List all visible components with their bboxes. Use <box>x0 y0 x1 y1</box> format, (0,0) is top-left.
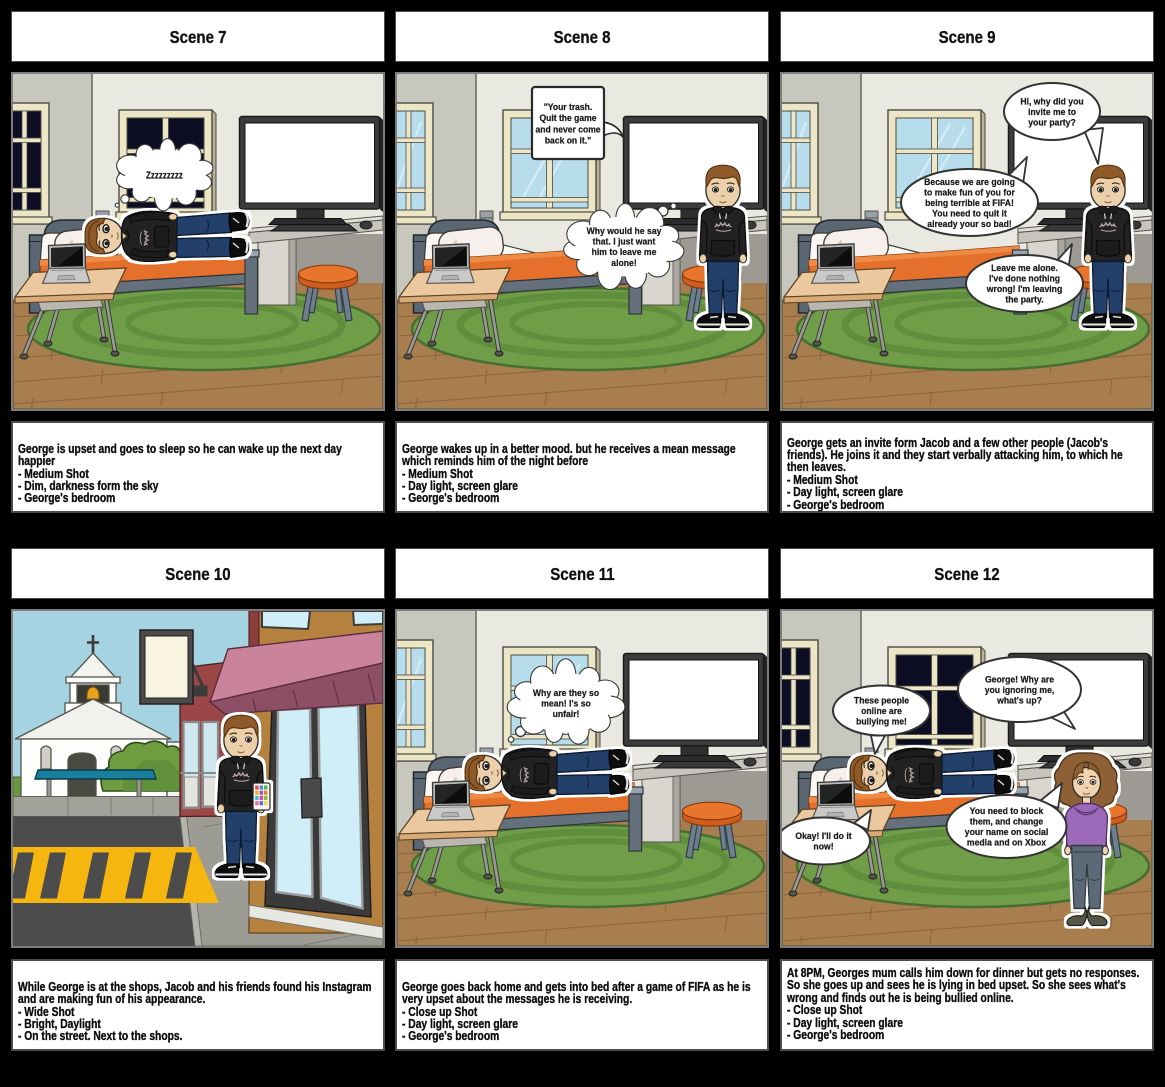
svg-text:alone!: alone! <box>612 257 637 268</box>
svg-text:Hi, why did you: Hi, why did you <box>1020 95 1083 106</box>
svg-text:online are: online are <box>861 705 902 716</box>
svg-text:the party.: the party. <box>1005 294 1043 305</box>
svg-text:Okay! I'll do it: Okay! I'll do it <box>795 831 851 842</box>
svg-text:"Your trash.: "Your trash. <box>544 101 593 111</box>
svg-text:media and on Xbox: media and on Xbox <box>967 837 1047 848</box>
svg-text:Quit the game: Quit the game <box>540 112 597 122</box>
svg-text:being terrible at FIFA!: being terrible at FIFA! <box>925 197 1014 208</box>
svg-text:already your so bad!: already your so bad! <box>927 218 1011 229</box>
svg-text:You need to block: You need to block <box>969 806 1044 817</box>
svg-text:him to leave me: him to leave me <box>592 246 657 257</box>
svg-text:bullying me!: bullying me! <box>856 716 907 727</box>
svg-text:now!: now! <box>813 841 833 852</box>
svg-text:Why are they so: Why are they so <box>533 687 600 698</box>
svg-text:I've done nothing: I've done nothing <box>989 273 1060 284</box>
svg-text:and never come: and never come <box>536 124 601 134</box>
svg-text:George! Why are: George! Why are <box>985 674 1054 685</box>
svg-text:Leave me alone.: Leave me alone. <box>991 262 1058 273</box>
svg-text:Why would he say: Why would he say <box>587 225 663 236</box>
svg-text:what's up?: what's up? <box>996 695 1042 706</box>
svg-text:your name on social: your name on social <box>964 827 1047 838</box>
svg-text:These people: These people <box>854 695 909 706</box>
svg-text:You need to quit it: You need to quit it <box>932 207 1007 218</box>
svg-text:back on it.": back on it." <box>545 135 591 145</box>
svg-text:Zzzzzzzzz: Zzzzzzzzz <box>146 169 183 180</box>
svg-text:to make fun of you for: to make fun of you for <box>924 186 1015 197</box>
svg-text:you ignoring me,: you ignoring me, <box>984 684 1054 695</box>
svg-text:invite me to: invite me to <box>1028 106 1076 117</box>
svg-text:unfair!: unfair! <box>553 709 580 720</box>
svg-text:Because we are going: Because we are going <box>924 176 1015 187</box>
svg-text:that. I just want: that. I just want <box>593 236 656 247</box>
svg-text:mean! I's so: mean! I's so <box>542 698 592 709</box>
svg-text:wrong! I'm leaving: wrong! I'm leaving <box>986 283 1062 294</box>
svg-text:them, and change: them, and change <box>969 816 1042 827</box>
svg-text:your party?: your party? <box>1028 116 1076 127</box>
